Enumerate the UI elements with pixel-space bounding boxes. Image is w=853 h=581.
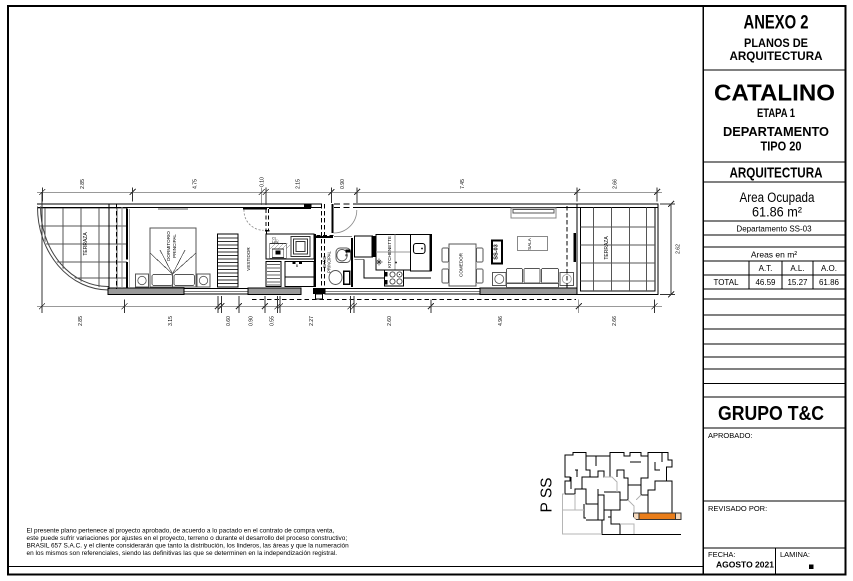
svg-text:GRUPO T&C: GRUPO T&C <box>718 403 824 425</box>
svg-text:0.90: 0.90 <box>249 316 255 326</box>
svg-text:2.62: 2.62 <box>676 244 682 254</box>
svg-text:61.86: 61.86 <box>819 278 840 287</box>
svg-text:REVISADO POR:: REVISADO POR: <box>708 504 767 513</box>
svg-text:2.66: 2.66 <box>613 179 619 189</box>
svg-text:0.90: 0.90 <box>340 179 346 189</box>
svg-text:PLANOS DE: PLANOS DE <box>744 38 808 50</box>
svg-text:ARQUITECTURA: ARQUITECTURA <box>730 165 823 182</box>
svg-text:15.27: 15.27 <box>787 278 808 287</box>
svg-text:A.O.: A.O. <box>821 264 837 273</box>
svg-text:SALA: SALA <box>527 237 532 250</box>
svg-text:en los mismos son referenciale: en los mismos son referenciales, siendo … <box>27 550 338 557</box>
svg-text:0.55: 0.55 <box>270 316 276 326</box>
svg-text:TIPO 20: TIPO 20 <box>761 140 802 154</box>
svg-text:2.66: 2.66 <box>612 316 618 326</box>
svg-text:4.75: 4.75 <box>193 179 199 189</box>
svg-text:61.86 m²: 61.86 m² <box>752 205 802 220</box>
svg-text:El presente plano pertenece al: El presente plano pertenece al proyecto … <box>27 528 335 535</box>
svg-text:AGOSTO 2021: AGOSTO 2021 <box>716 560 774 570</box>
svg-text:DEPARTAMENTO: DEPARTAMENTO <box>723 125 829 139</box>
svg-text:PRINCIPAL: PRINCIPAL <box>327 250 332 272</box>
svg-text:SS-03: SS-03 <box>494 244 500 260</box>
svg-text:2.85: 2.85 <box>78 316 84 326</box>
svg-text:A.T.: A.T. <box>759 264 773 273</box>
svg-text:CATALINO: CATALINO <box>714 80 835 106</box>
svg-text:Departamento SS-03: Departamento SS-03 <box>736 225 812 234</box>
svg-text:3.15: 3.15 <box>168 316 174 326</box>
svg-text:LAMINA:: LAMINA: <box>780 550 810 559</box>
svg-text:este puede sufrir variaciones: este puede sufrir variaciones por ajuste… <box>27 535 348 542</box>
svg-text:2.60: 2.60 <box>387 316 393 326</box>
svg-text:Areas en m²: Areas en m² <box>751 250 797 260</box>
svg-text:TERRAZA: TERRAZA <box>83 232 89 256</box>
svg-text:COMEDOR: COMEDOR <box>459 252 464 277</box>
svg-text:A.L.: A.L. <box>790 264 804 273</box>
svg-text:APROBADO:: APROBADO: <box>708 431 753 440</box>
svg-text:2.15: 2.15 <box>296 179 302 189</box>
svg-text:P SS: P SS <box>539 477 556 512</box>
svg-text:FECHA:: FECHA: <box>708 550 736 559</box>
svg-text:Area Ocupada: Area Ocupada <box>740 190 815 205</box>
svg-text:ANEXO 2: ANEXO 2 <box>744 13 809 34</box>
svg-text:0.60: 0.60 <box>226 316 232 326</box>
svg-text:2.85: 2.85 <box>80 179 86 189</box>
svg-text:ARQUITECTURA: ARQUITECTURA <box>730 51 823 63</box>
svg-text:KITCHENETTE: KITCHENETTE <box>387 236 392 268</box>
svg-text:TOTAL: TOTAL <box>713 278 739 287</box>
svg-text:7.45: 7.45 <box>460 179 466 189</box>
svg-text:TERRAZA: TERRAZA <box>604 236 610 260</box>
svg-text:ETAPA 1: ETAPA 1 <box>757 108 795 120</box>
svg-text:VESTIDOR: VESTIDOR <box>246 247 251 271</box>
svg-text:46.59: 46.59 <box>755 278 776 287</box>
svg-text:DORMITORIO: DORMITORIO <box>166 231 171 261</box>
svg-text:PRINCIPAL: PRINCIPAL <box>172 234 177 258</box>
svg-text:4.96: 4.96 <box>498 316 504 326</box>
svg-text:2.27: 2.27 <box>309 316 315 326</box>
svg-text:BRASIL 657 S.A.C. y el cliente: BRASIL 657 S.A.C. y el cliente considera… <box>27 543 350 550</box>
svg-text:0.10: 0.10 <box>260 177 266 187</box>
